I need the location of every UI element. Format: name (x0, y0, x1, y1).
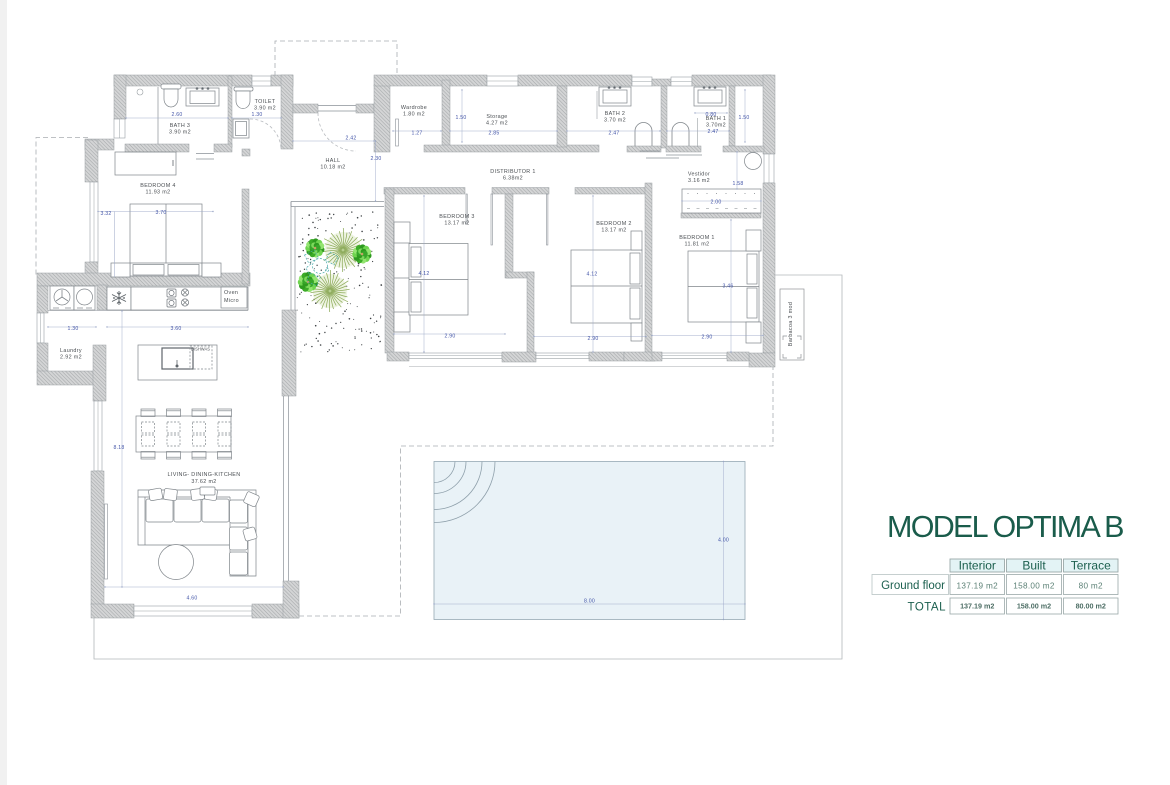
svg-text:TOILET: TOILET (255, 99, 276, 105)
svg-text:80 m2: 80 m2 (1079, 582, 1103, 591)
svg-text:158.00 m2: 158.00 m2 (1013, 582, 1055, 591)
svg-text:8.18: 8.18 (114, 445, 125, 451)
svg-text:6.38m2: 6.38m2 (503, 175, 523, 181)
svg-text:137.19 m2: 137.19 m2 (960, 602, 994, 611)
svg-text:13.17 m2: 13.17 m2 (444, 220, 469, 226)
svg-text:2.85: 2.85 (489, 131, 500, 137)
svg-text:Built: Built (1022, 559, 1046, 573)
svg-text:2.90: 2.90 (445, 334, 456, 340)
svg-text:13.17 m2: 13.17 m2 (601, 227, 626, 233)
svg-text:BEDROOM 1: BEDROOM 1 (679, 235, 715, 241)
svg-text:3.46: 3.46 (723, 284, 734, 290)
svg-text:2.30: 2.30 (371, 156, 382, 162)
svg-text:2.47: 2.47 (708, 129, 719, 135)
svg-text:3.16 m2: 3.16 m2 (688, 178, 710, 184)
svg-text:0.80: 0.80 (706, 112, 717, 118)
svg-text:BEDROOM 2: BEDROOM 2 (596, 221, 632, 227)
svg-text:2.90: 2.90 (702, 335, 713, 341)
svg-text:2.42: 2.42 (346, 136, 357, 142)
svg-text:8.00: 8.00 (584, 599, 595, 605)
svg-text:2.60: 2.60 (172, 112, 183, 118)
svg-text:Laundry: Laundry (60, 348, 82, 354)
svg-text:1.27: 1.27 (412, 131, 423, 137)
svg-text:BEDROOM 4: BEDROOM 4 (140, 183, 176, 189)
svg-text:3.70 m2: 3.70 m2 (604, 117, 626, 123)
svg-text:11.93 m2: 11.93 m2 (146, 189, 171, 195)
svg-text:3.70m2: 3.70m2 (706, 122, 726, 128)
svg-text:1.50: 1.50 (456, 115, 467, 121)
svg-text:BATH 3: BATH 3 (170, 123, 191, 129)
svg-text:Vestidor: Vestidor (688, 172, 710, 178)
svg-text:3.70: 3.70 (156, 210, 167, 216)
svg-text:3.90 m2: 3.90 m2 (169, 129, 191, 135)
svg-text:DISTRIBUTOR 1: DISTRIBUTOR 1 (490, 169, 536, 175)
svg-text:Interior: Interior (959, 559, 996, 573)
svg-text:1.50: 1.50 (739, 115, 750, 121)
svg-text:4.12: 4.12 (419, 271, 430, 277)
svg-text:MODEL OPTIMA B: MODEL OPTIMA B (887, 510, 1126, 544)
svg-text:80.00 m2: 80.00 m2 (1076, 602, 1106, 611)
svg-text:TOTAL: TOTAL (908, 602, 947, 614)
svg-text:1.58: 1.58 (733, 181, 744, 187)
svg-text:Micro: Micro (224, 298, 239, 304)
svg-text:4.60: 4.60 (187, 596, 198, 602)
svg-text:3.60: 3.60 (171, 326, 182, 332)
svg-text:1.80 m2: 1.80 m2 (403, 111, 425, 117)
svg-text:4.00: 4.00 (718, 538, 729, 544)
svg-text:Oven: Oven (224, 290, 238, 296)
svg-text:3.90 m2: 3.90 m2 (254, 105, 276, 111)
svg-text:Wardrobe: Wardrobe (401, 105, 427, 111)
svg-text:2.00: 2.00 (711, 200, 722, 206)
svg-text:HALL: HALL (326, 158, 341, 164)
svg-text:4.27 m2: 4.27 m2 (486, 120, 508, 126)
svg-text:DISHWAS: DISHWAS (191, 347, 210, 352)
svg-text:BATH 2: BATH 2 (605, 111, 626, 117)
svg-text:158.00 m2: 158.00 m2 (1017, 602, 1051, 611)
svg-text:3.32: 3.32 (101, 211, 112, 217)
svg-text:37.62 m2: 37.62 m2 (191, 479, 216, 485)
svg-text:Terrace: Terrace (1071, 559, 1111, 573)
svg-text:Barbacoa 3 mod: Barbacoa 3 mod (788, 302, 794, 346)
svg-text:BEDROOM 3: BEDROOM 3 (439, 214, 475, 220)
svg-text:2.90: 2.90 (588, 336, 599, 342)
svg-text:11.81 m2: 11.81 m2 (685, 241, 710, 247)
svg-text:10.18 m2: 10.18 m2 (320, 164, 345, 170)
svg-text:Ground floor: Ground floor (881, 580, 945, 592)
svg-text:2.47: 2.47 (609, 131, 620, 137)
svg-text:LIVING- DINING-KITCHEN: LIVING- DINING-KITCHEN (168, 472, 241, 478)
svg-text:Storage: Storage (486, 114, 507, 120)
svg-text:4.12: 4.12 (587, 272, 598, 278)
svg-text:1.30: 1.30 (252, 112, 263, 118)
svg-text:2.92 m2: 2.92 m2 (60, 354, 82, 360)
svg-text:137.19 m2: 137.19 m2 (957, 582, 999, 591)
svg-text:1.30: 1.30 (68, 326, 79, 332)
